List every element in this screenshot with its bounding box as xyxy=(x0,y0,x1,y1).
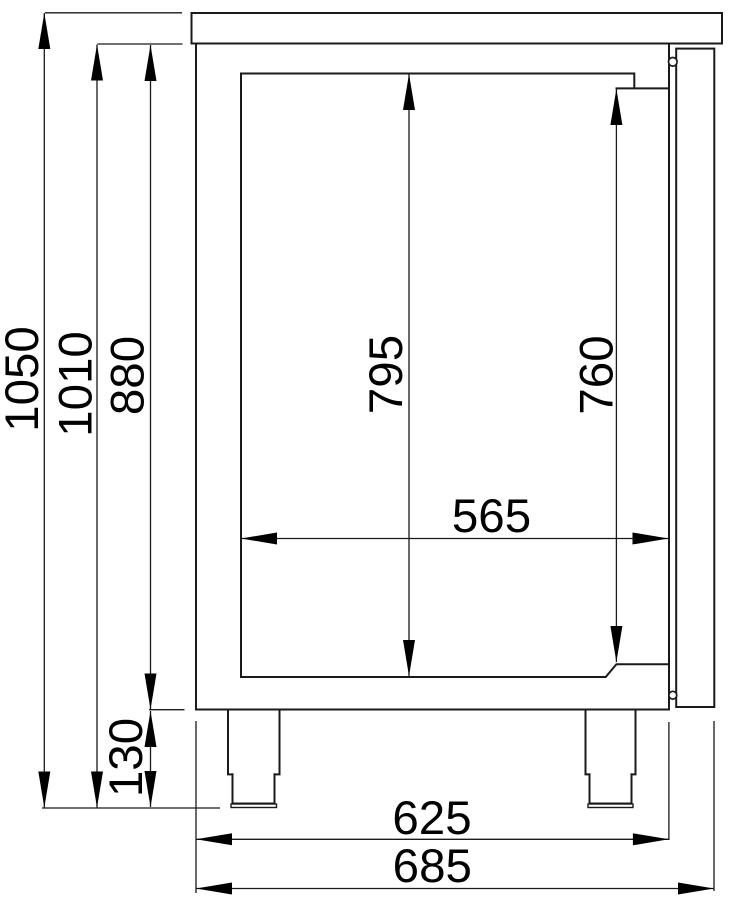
svg-text:1010: 1010 xyxy=(50,331,103,437)
svg-text:565: 565 xyxy=(452,490,531,543)
svg-text:880: 880 xyxy=(102,336,155,415)
svg-text:795: 795 xyxy=(360,335,413,414)
svg-text:1050: 1050 xyxy=(0,326,49,432)
svg-text:625: 625 xyxy=(392,792,471,845)
svg-text:685: 685 xyxy=(393,840,472,893)
svg-text:130: 130 xyxy=(100,718,153,797)
svg-text:760: 760 xyxy=(571,335,624,414)
